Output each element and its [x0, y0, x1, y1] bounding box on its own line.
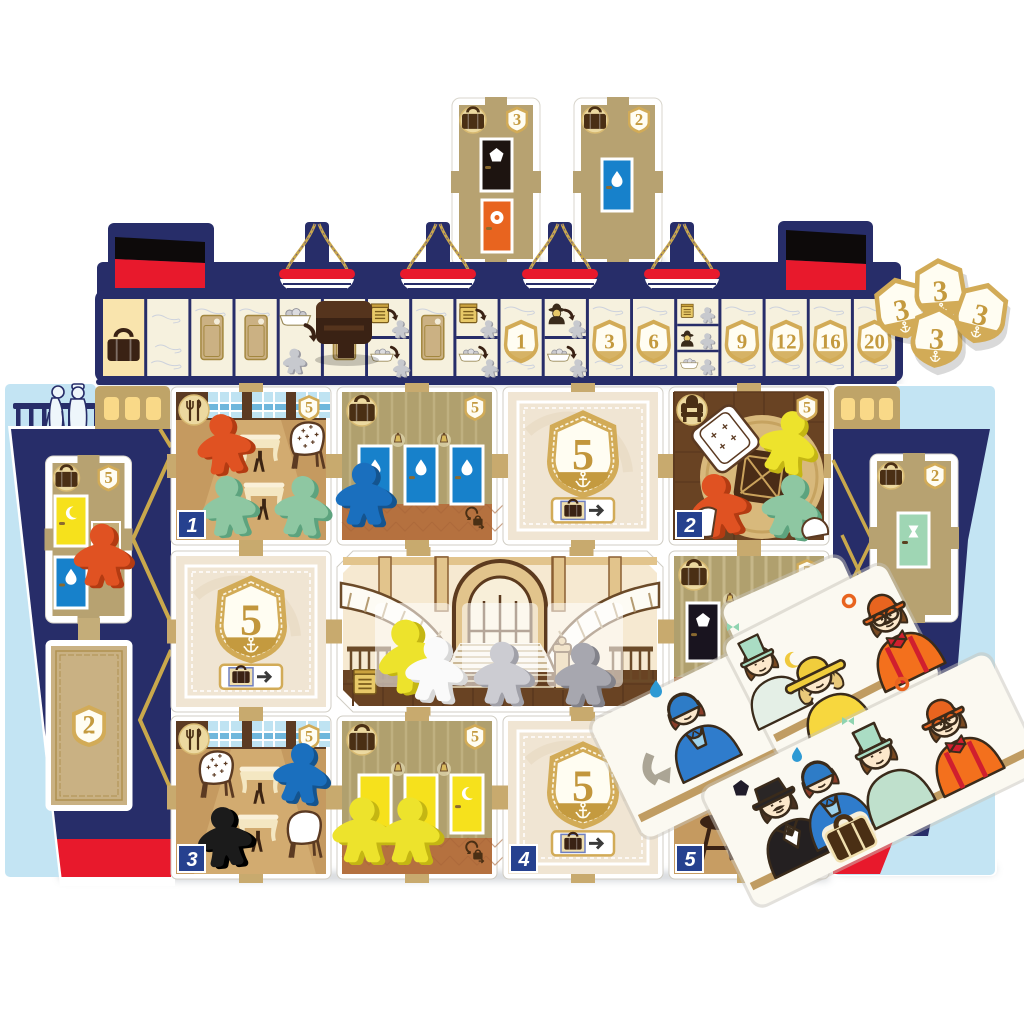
svg-text:6: 6: [648, 329, 658, 353]
svg-text:5: 5: [684, 849, 696, 871]
svg-text:16: 16: [820, 329, 841, 353]
svg-text:5: 5: [471, 400, 479, 417]
svg-text:1: 1: [516, 329, 526, 353]
svg-text:5: 5: [104, 468, 112, 487]
svg-text:2: 2: [683, 515, 695, 537]
svg-text:2: 2: [635, 110, 643, 129]
svg-text:4: 4: [517, 849, 529, 871]
svg-text:1: 1: [186, 515, 197, 537]
svg-text:5: 5: [305, 729, 313, 746]
svg-text:3: 3: [186, 849, 197, 871]
svg-text:5: 5: [305, 400, 313, 417]
svg-text:9: 9: [737, 329, 747, 353]
svg-text:3: 3: [513, 110, 521, 129]
svg-text:3: 3: [604, 329, 614, 353]
svg-text:2: 2: [931, 466, 939, 485]
svg-text:20: 20: [864, 329, 885, 353]
svg-text:5: 5: [803, 400, 811, 417]
svg-text:5: 5: [471, 729, 479, 746]
svg-text:12: 12: [776, 329, 797, 353]
